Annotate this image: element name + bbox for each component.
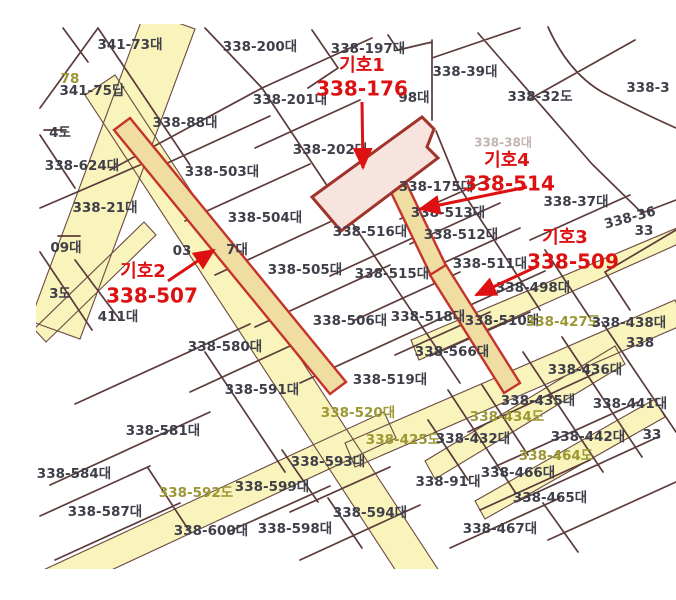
parcel-label: 338-498대 — [496, 280, 570, 296]
parcel-label: 338-37대 — [544, 194, 609, 210]
road-label: 338-434도 — [470, 409, 545, 425]
parcel-label: 338-202대 — [293, 142, 367, 158]
parcel-label: 341-73대 — [98, 37, 163, 53]
parcel-label: 411대 — [98, 309, 139, 325]
annotation-number-4: 338-514 — [463, 172, 555, 196]
parcel-label: 33 — [635, 223, 654, 239]
road-label: 338-425도 — [366, 432, 441, 448]
parcel-label: 03 — [173, 243, 192, 259]
parcel-label: 338-599대 — [235, 479, 309, 495]
parcel-label: 338-594대 — [333, 505, 407, 521]
annotation-symbol-4: 기호4 — [484, 150, 530, 171]
annotation-number-2: 338-507 — [106, 284, 198, 308]
annotation-symbol-3: 기호3 — [542, 227, 588, 248]
parcel-label: 338-580대 — [188, 339, 262, 355]
parcel-label: 338 — [626, 335, 654, 351]
parcel-label: 338-600대 — [174, 523, 248, 539]
parcel-label: 338-624대 — [45, 158, 119, 174]
road-label: 338-592도 — [159, 485, 234, 501]
parcel-label: 3도 — [49, 286, 71, 302]
parcel-label: 338-32도 — [508, 89, 574, 105]
parcel-label: 338-593대 — [291, 454, 365, 470]
parcel-label: 338-518대 — [391, 309, 465, 325]
parcel-label: 338-3 — [626, 80, 669, 96]
parcel-label: 338-506대 — [313, 313, 387, 329]
parcel-label: 338-91대 — [416, 474, 481, 490]
parcel-label: 09대 — [50, 240, 81, 256]
parcel-label: 338-516대 — [333, 224, 407, 240]
parcel-label: 338-465대 — [513, 490, 587, 506]
parcel-label: 341-75답 — [60, 82, 126, 99]
parcel-label: 33 — [643, 427, 662, 443]
parcel-label: 338-515대 — [355, 266, 429, 282]
annotation-arrow-1 — [362, 102, 363, 168]
road-label: 338-427도 — [526, 314, 601, 330]
annotation-number-3: 338-509 — [527, 250, 619, 274]
parcel-label: 338-436대 — [548, 362, 622, 378]
parcel-label: 338-466대 — [481, 465, 555, 481]
parcel-label: 338-442대 — [551, 429, 625, 445]
parcel-label: 338-519대 — [353, 372, 427, 388]
parcel-label: 338-587대 — [68, 504, 142, 520]
parcel-label: 338-438대 — [592, 315, 666, 331]
parcel-label: 338-435대 — [501, 393, 575, 409]
parcel-label: 338-598대 — [258, 521, 332, 537]
annotation-number-1: 338-176 — [316, 77, 408, 101]
annotation-symbol-2: 기호2 — [120, 261, 166, 282]
cadastral-map: 341-73대338-200대338-197대338-39대338-32도338… — [0, 0, 676, 600]
parcel-label: 338-88대 — [153, 115, 218, 131]
map-canvas: 341-73대338-200대338-197대338-39대338-32도338… — [0, 0, 676, 600]
parcel-label: 338-175대 — [399, 179, 473, 195]
parcel-label: 7대 — [226, 242, 248, 258]
parcel-label: 338-505대 — [268, 262, 342, 278]
parcel-label: 338-503대 — [185, 164, 259, 180]
parcel-label: 338-39대 — [433, 64, 498, 80]
parcel-label: 338-504대 — [228, 210, 302, 226]
road-label: 338-464도 — [519, 448, 594, 464]
parcel-label: 338-581대 — [126, 423, 200, 439]
parcel-label: 338-38대 — [474, 136, 532, 150]
annotation-symbol-1: 기호1 — [339, 55, 385, 76]
road-label: 338-520대 — [321, 405, 395, 421]
parcel-label: 338-441대 — [593, 396, 667, 412]
parcel-label: 338-467대 — [463, 521, 537, 537]
parcel-label: 338-512대 — [424, 227, 498, 243]
parcel-label: 4도 — [49, 125, 71, 141]
parcel-label: 338-511대 — [453, 256, 527, 272]
parcel-label: 338-200대 — [223, 39, 297, 55]
parcel-label: 338-432대 — [436, 431, 510, 447]
parcel-label: 338-584대 — [37, 466, 111, 482]
parcel-label: 338-591대 — [225, 382, 299, 398]
parcel-label: 338-566대 — [415, 344, 489, 360]
parcel-label: 338-21대 — [73, 200, 138, 216]
